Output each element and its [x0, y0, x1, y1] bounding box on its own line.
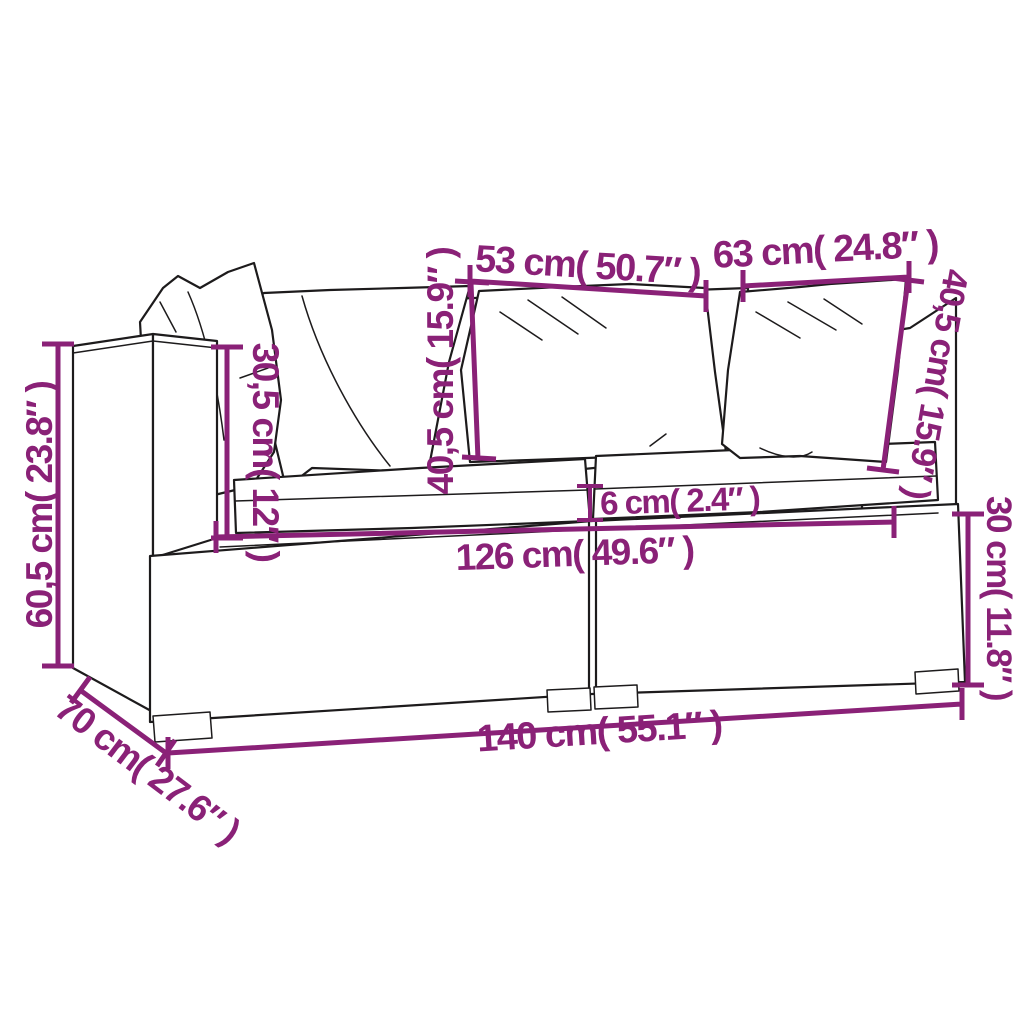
- back-pillow-right: [722, 279, 906, 462]
- back-pillow-right-outline: [722, 279, 906, 462]
- dimension-label: 30 cm( 11.8″ ): [979, 496, 1018, 700]
- back-pillow-center-outline: [461, 284, 726, 462]
- dimension-seat-cushion-thickness: 6 cm( 2.4″ ): [577, 479, 760, 522]
- dimension-label: 30,5 cm( 12″ ): [245, 343, 286, 562]
- foot-mid-right: [594, 685, 638, 709]
- foot-right: [915, 669, 959, 694]
- sofa-line-art: [73, 263, 965, 742]
- foot-left: [153, 712, 212, 742]
- dimension-label: 60,5 cm( 23.8″ ): [19, 381, 60, 628]
- dimension-label: 6 cm( 2.4″ ): [599, 479, 760, 522]
- foot-mid-left: [547, 688, 591, 712]
- back-pillow-center: [461, 284, 726, 462]
- diagram-canvas: 53 cm( 50.7″ ) 63 cm( 24.8″ ) 40,5 cm( 1…: [0, 0, 1024, 1024]
- dimension-label: 63 cm( 24.8″ ): [712, 223, 939, 277]
- dimension-overall-height: 60,5 cm( 23.8″ ): [19, 344, 74, 666]
- dimension-label: 126 cm( 49.6″ ): [455, 529, 694, 578]
- armrest-front-fill: [153, 334, 217, 558]
- dimension-label: 40,5 cm( 15.9″ ): [420, 247, 461, 494]
- dimension-label: 140 cm( 55.1″ ): [476, 704, 723, 761]
- product-dimension-diagram: 53 cm( 50.7″ ) 63 cm( 24.8″ ) 40,5 cm( 1…: [0, 0, 1024, 1024]
- armrest-left-fill: [73, 334, 153, 712]
